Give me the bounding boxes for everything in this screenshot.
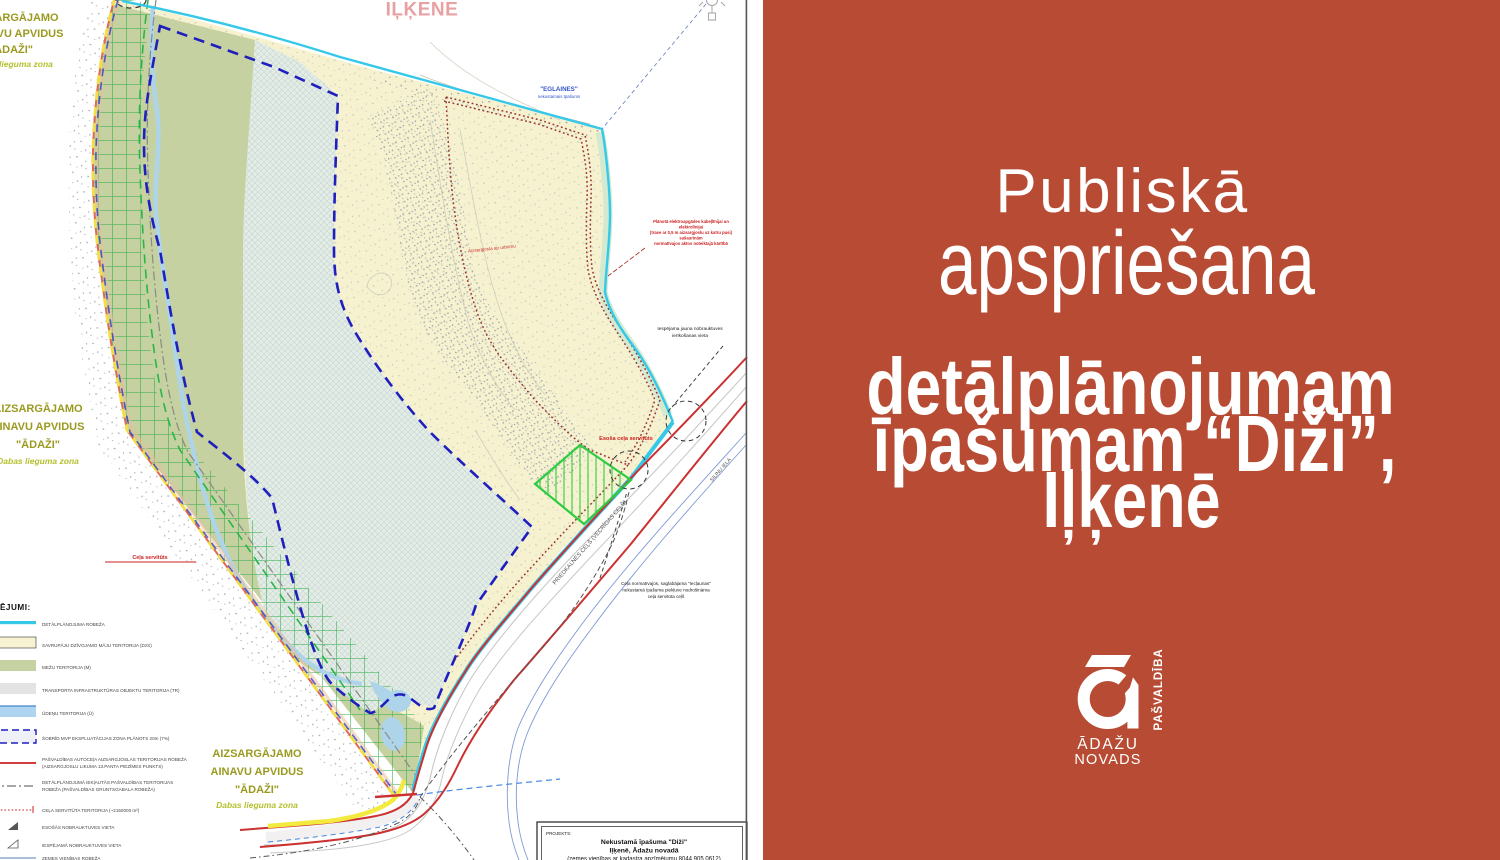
svg-text:TRANSPORTA INFRASTRUKTŪRAS OBJ: TRANSPORTA INFRASTRUKTŪRAS OBJEKTU TERIT… bbox=[42, 687, 180, 693]
svg-text:SAVRUPĀJU DZĪVOJAMO MĀJU TERIT: SAVRUPĀJU DZĪVOJAMO MĀJU TERITORIJA (DzS… bbox=[42, 642, 152, 648]
svg-text:APZĪMĒJUMI:: APZĪMĒJUMI: bbox=[0, 602, 31, 612]
svg-text:AIZSARGĀJAMO: AIZSARGĀJAMO bbox=[0, 12, 59, 24]
svg-text:(zemes vienības ar kadastra ap: (zemes vienības ar kadastra apzīmējumu 8… bbox=[567, 857, 720, 860]
svg-text:(AIZSARGJOSLU LIKUMA 13.PANTA: (AIZSARGJOSLU LIKUMA 13.PANTA PIEZĪMES P… bbox=[42, 763, 163, 769]
svg-text:MEŽU TERITORIJA (M): MEŽU TERITORIJA (M) bbox=[42, 663, 91, 670]
svg-text:ĀDAŽU: ĀDAŽU bbox=[1077, 736, 1139, 753]
svg-text:normatīvajos aktos noteiktajā: normatīvajos aktos noteiktajā kārtībā bbox=[654, 241, 728, 246]
svg-text:(trase ar 0,5 m aizsargjoslu u: (trase ar 0,5 m aizsargjoslu uz katru pu… bbox=[650, 230, 733, 235]
svg-text:ROBEŽA (PAŠVALDĪBAS GRUNTSGABA: ROBEŽA (PAŠVALDĪBAS GRUNTSGABALA ROBEŽA) bbox=[42, 785, 155, 792]
svg-text:DETĀLPLĀNOJUMA ROBEŽA: DETĀLPLĀNOJUMA ROBEŽA bbox=[42, 620, 106, 627]
svg-text:Iļķenē, Ādažu novadā: Iļķenē, Ādažu novadā bbox=[609, 847, 678, 855]
svg-text:NOVADS: NOVADS bbox=[1074, 752, 1141, 768]
svg-text:DETĀLPLĀNOJUMĀ IEKļAUTĀS PAŠVA: DETĀLPLĀNOJUMĀ IEKļAUTĀS PAŠVALDĪBAS TER… bbox=[42, 779, 173, 785]
svg-text:AINAVU APVIDUS: AINAVU APVIDUS bbox=[0, 421, 84, 433]
svg-text:PROJEKTS:: PROJEKTS: bbox=[546, 831, 572, 836]
svg-text:IESPĒJAMĀ NOBRAUKTUVES VIETA: IESPĒJAMĀ NOBRAUKTUVES VIETA bbox=[42, 842, 122, 848]
svg-text:IĻĶENE: IĻĶENE bbox=[386, 0, 459, 21]
svg-text:PAŠVALDĪBAS AUTOCEļA AIZSARGJO: PAŠVALDĪBAS AUTOCEļA AIZSARGJOSLAS TERIT… bbox=[42, 755, 188, 762]
svg-text:AIZSARGĀJAMO: AIZSARGĀJAMO bbox=[0, 403, 83, 415]
svg-text:ŪDEŅU TERITORIJA (Ū): ŪDEŅU TERITORIJA (Ū) bbox=[42, 710, 94, 716]
svg-text:Iespējama jauna nobrauktuves: Iespējama jauna nobrauktuves bbox=[657, 326, 723, 332]
svg-text:nekustamā īpašuma piekļuve nod: nekustamā īpašuma piekļuve nodrošināma bbox=[622, 588, 710, 593]
svg-text:nekustamais īpašums: nekustamais īpašums bbox=[538, 94, 581, 99]
svg-text:ierīkošanas vieta: ierīkošanas vieta bbox=[672, 333, 708, 339]
svg-text:sašaurinām: sašaurinām bbox=[679, 236, 703, 241]
svg-text:ŠOBRĪD MVP EKSPLUATĀCIJAS ZONA: ŠOBRĪD MVP EKSPLUATĀCIJAS ZONA PLĀNOTS 2… bbox=[42, 735, 170, 741]
svg-text:Esoša ceļa servitūts: Esoša ceļa servitūts bbox=[599, 436, 653, 442]
svg-text:Ceļa servitūts: Ceļa servitūts bbox=[132, 555, 167, 561]
svg-text:Nekustamā īpašuma "Diži": Nekustamā īpašuma "Diži" bbox=[601, 839, 687, 846]
svg-text:Plānotā elektroapgādes kabeļlī: Plānotā elektroapgādes kabeļlīnijai un bbox=[653, 219, 729, 224]
svg-text:PAŠVALDĪBA: PAŠVALDĪBA bbox=[1152, 648, 1165, 730]
svg-text:"ĀDAŽI": "ĀDAŽI" bbox=[235, 783, 279, 796]
svg-text:ZEMES VIENĪBAS ROBEŽA: ZEMES VIENĪBAS ROBEŽA bbox=[42, 854, 101, 860]
svg-text:AINAVU APVIDUS: AINAVU APVIDUS bbox=[211, 766, 304, 778]
svg-text:elektrolīnijai: elektrolīnijai bbox=[679, 225, 703, 230]
svg-text:Ceļa normatīvajos, saglabājama: Ceļa normatīvajos, saglabājama "Iecļauna… bbox=[621, 581, 711, 586]
svg-text:ceļa servitūta ceļš: ceļa servitūta ceļš bbox=[648, 594, 685, 599]
svg-text:"EGLAINES": "EGLAINES" bbox=[540, 86, 578, 93]
svg-text:Dabas lieguma zona: Dabas lieguma zona bbox=[0, 59, 53, 69]
svg-text:AIZSARGĀJAMO: AIZSARGĀJAMO bbox=[212, 748, 302, 760]
svg-text:Dabas lieguma zona: Dabas lieguma zona bbox=[0, 456, 79, 466]
svg-text:ESOŠĀS NOBRAUKTUVES VIETA: ESOŠĀS NOBRAUKTUVES VIETA bbox=[42, 824, 115, 830]
svg-text:"ĀDAŽI": "ĀDAŽI" bbox=[0, 43, 33, 56]
svg-text:AINAVU APVIDUS: AINAVU APVIDUS bbox=[0, 28, 63, 40]
svg-text:"ĀDAŽI": "ĀDAŽI" bbox=[16, 438, 60, 451]
svg-text:CEĻA SERVITŪTA TERITORIJA (~21: CEĻA SERVITŪTA TERITORIJA (~2150000 m²) bbox=[42, 807, 140, 813]
svg-text:Dabas lieguma zona: Dabas lieguma zona bbox=[216, 800, 298, 810]
